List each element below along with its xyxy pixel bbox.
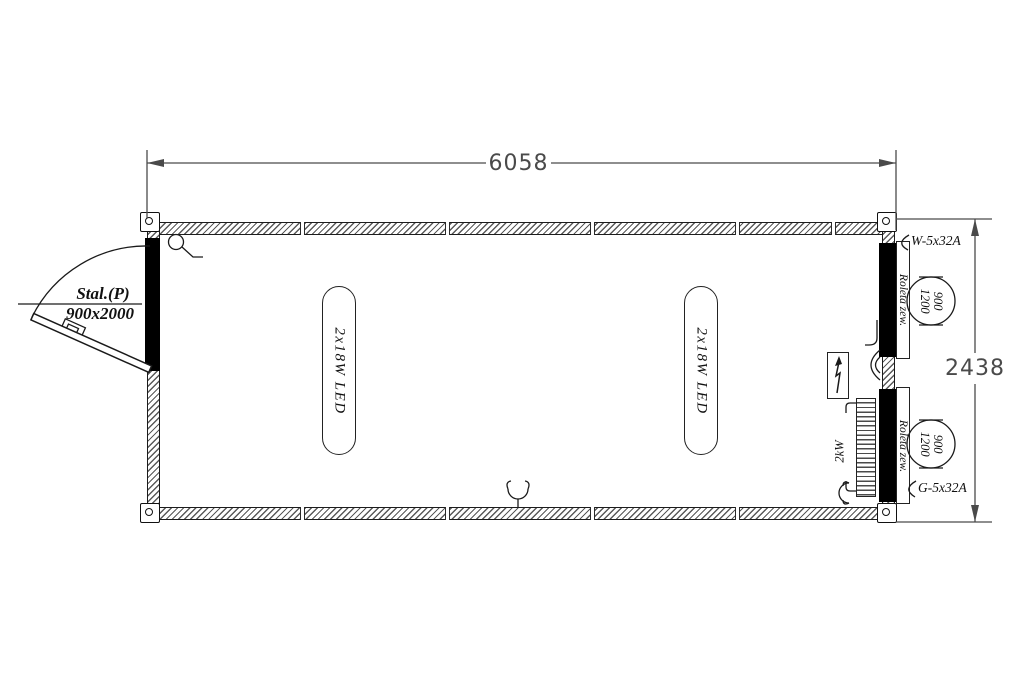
wall-lamp-icon xyxy=(871,350,880,380)
floor-plan-drawing: Roleta zew. Roleta zew. 2x18W LED 2x18W … xyxy=(0,0,1024,683)
power-inlet-label: W-5x32A xyxy=(911,233,961,249)
width-dimension-text: 6058 xyxy=(486,151,551,176)
outlet-label-leader xyxy=(909,481,916,497)
power-outlet-label: G-5x32A xyxy=(918,480,967,496)
window-2-height: 1200 xyxy=(918,414,931,474)
socket-icon xyxy=(507,481,529,507)
heater-power-label: 2kW xyxy=(833,434,848,470)
window-2-size-text: 900 1200 xyxy=(918,414,944,474)
window-2-width: 900 xyxy=(931,414,944,474)
door-size-label: 900x2000 xyxy=(40,304,160,324)
heater-socket-icon xyxy=(839,482,849,504)
window-1-size-text: 900 1200 xyxy=(918,271,944,331)
switch-icon xyxy=(169,235,204,258)
lightning-bolt-icon xyxy=(835,356,842,393)
inlet-label-leader xyxy=(902,235,909,250)
window-handle-icon xyxy=(865,320,877,345)
window-1-height: 1200 xyxy=(918,271,931,331)
window-1-width: 900 xyxy=(931,271,944,331)
height-dimension-text: 2438 xyxy=(941,356,1009,381)
linework-layer xyxy=(0,0,1024,683)
door-type-label: Stal.(P) xyxy=(43,284,163,304)
heater-pipe-icon xyxy=(846,403,856,413)
